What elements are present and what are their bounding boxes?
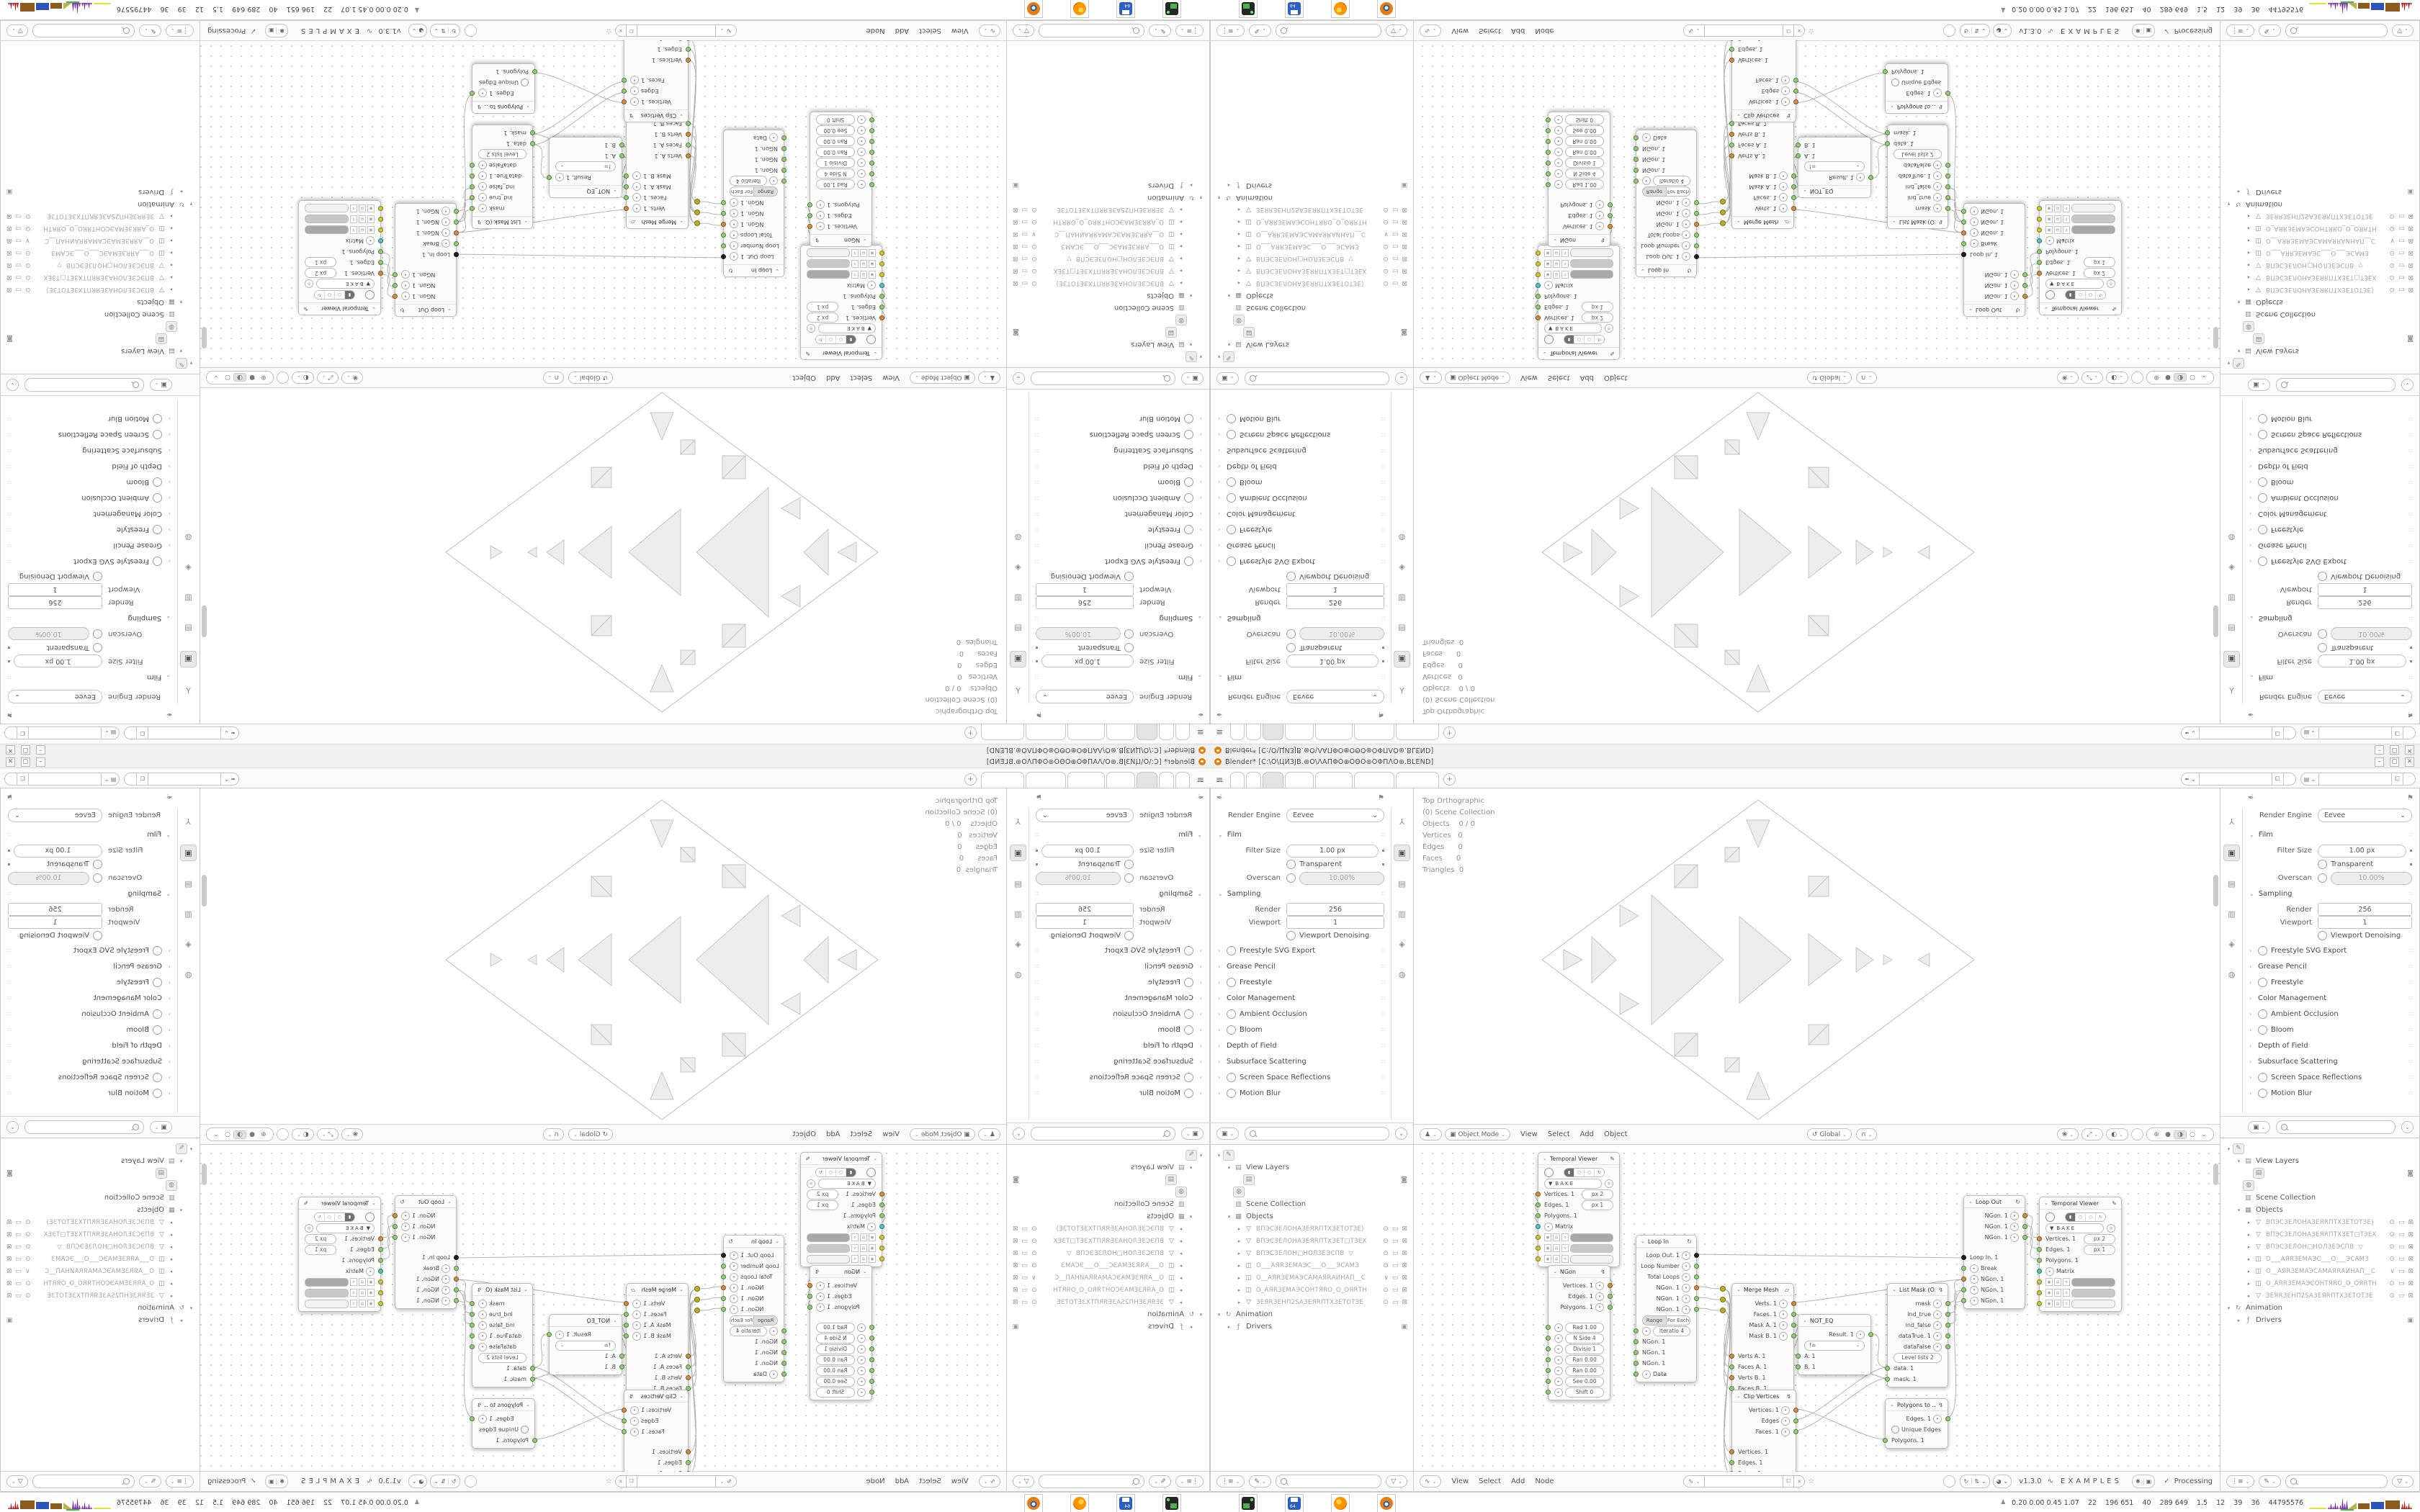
node-collapse-icon[interactable]: ⌄ xyxy=(1803,189,1807,194)
socket-dropdown-icon[interactable]: ▾ xyxy=(1933,194,1942,202)
bake-button[interactable]: ▼BAKE xyxy=(316,1223,375,1233)
copy-node-tree-button[interactable]: ⧠ xyxy=(626,24,637,37)
node-collapse-icon[interactable]: ⌄ xyxy=(1736,113,1741,119)
render-icon[interactable]: ▣ xyxy=(1010,845,1026,861)
viewer-mode-toggle-1[interactable]: ▮ xyxy=(1564,1169,1574,1176)
color-swatch[interactable] xyxy=(807,271,850,279)
socket-dropdown-icon[interactable]: ▾ xyxy=(401,292,410,301)
socket-dropdown-icon[interactable]: ▾ xyxy=(730,1284,738,1292)
unlink-node-tree-button[interactable]: ✕ xyxy=(615,24,626,37)
swatch-option-1[interactable]: ▣ xyxy=(367,1300,375,1308)
prop-row[interactable]: Overscan10.00% xyxy=(1028,627,1209,641)
socket-dropdown-icon[interactable]: ▾ xyxy=(630,1417,639,1426)
socket-ngon-1[interactable] xyxy=(454,1287,459,1292)
drag-grip-icon[interactable]: ∷ xyxy=(6,448,11,454)
scene-icon[interactable]: ◈ xyxy=(1010,937,1026,952)
properties-search-input[interactable] xyxy=(2276,378,2396,392)
node-list-mask-o[interactable]: ⌄List Mask (O...↯mask▾ind_true▾ind_false… xyxy=(472,1283,533,1387)
section-caret-icon[interactable]: › xyxy=(2249,1090,2254,1097)
node-collapse-icon[interactable]: ⌄ xyxy=(873,351,877,356)
socket-mask-b-1[interactable] xyxy=(624,174,629,179)
camx-icon[interactable]: ⊠ xyxy=(6,250,12,257)
prop-row[interactable]: ›Depth of Field∷ xyxy=(1211,459,1391,474)
socket-swatch[interactable] xyxy=(1536,262,1541,267)
bake-button[interactable]: ▼BAKE xyxy=(818,1179,876,1189)
prop-row[interactable]: ›Freestyle∷ xyxy=(1028,522,1209,538)
socket-dropdown-icon[interactable]: ▾ xyxy=(478,89,487,98)
outliner-row[interactable]: ◍ xyxy=(1010,1186,1205,1198)
node-polygons-to[interactable]: ⌄Polygons to ...↯Edges. 1▾Unique EdgesPo… xyxy=(472,63,535,114)
socket-edges-1[interactable] xyxy=(686,1460,691,1465)
node-tree-name-field[interactable] xyxy=(1705,24,1783,37)
socket-dropdown-icon[interactable]: ▾ xyxy=(478,1343,487,1351)
viewport-scrollbar[interactable] xyxy=(202,875,207,906)
camx-icon[interactable]: ⊠ xyxy=(6,1280,12,1287)
copy-node-tree-button[interactable]: ⧠ xyxy=(1783,24,1794,37)
expand-caret-icon[interactable]: ▸ xyxy=(1187,1324,1195,1330)
socket-matrix[interactable] xyxy=(2037,1269,2042,1274)
section-caret-icon[interactable]: › xyxy=(2249,559,2254,565)
expand-caret-icon[interactable]: ▸ xyxy=(167,238,175,244)
prop-row[interactable]: ›Grease Pencil∷ xyxy=(1028,958,1209,974)
node-collapse-icon[interactable]: ⌄ xyxy=(1553,238,1557,243)
socket-verts-1[interactable] xyxy=(624,207,629,212)
socket-data-1[interactable] xyxy=(530,1366,535,1371)
wireframe-shading-icon[interactable]: ⊕ xyxy=(2151,374,2162,382)
prop-row[interactable]: ›Freestyle SVG Export∷ xyxy=(1211,942,1391,958)
outliner-row[interactable]: ▥Scene Collection xyxy=(1010,302,1205,314)
socket-swatch[interactable] xyxy=(879,1246,884,1251)
chev-icon[interactable]: ∨ xyxy=(1384,231,1389,238)
prop-row[interactable]: Transparent xyxy=(1211,641,1391,654)
viewport-scrollbar[interactable] xyxy=(2213,875,2218,906)
screen-icon[interactable]: ▭ xyxy=(1022,256,1028,263)
eye-icon[interactable]: ⊙ xyxy=(25,287,31,294)
section-caret-icon[interactable]: ⌄ xyxy=(1218,674,1223,680)
section-checkbox[interactable] xyxy=(2258,494,2267,503)
workspace-tab-5[interactable] xyxy=(1067,772,1105,788)
prop-checkbox[interactable] xyxy=(2318,629,2327,639)
socket-diamond-icon[interactable]: ▸ xyxy=(769,1370,778,1379)
socket-ngon-1[interactable] xyxy=(1694,1296,1699,1301)
socket-total-loops[interactable] xyxy=(721,233,726,238)
shading-mode-group[interactable]: ⊕●◑○⌄ xyxy=(206,371,274,384)
rendered-shading-icon[interactable]: ○ xyxy=(222,374,233,382)
socket-dropdown-icon[interactable]: ▾ xyxy=(1933,1321,1942,1330)
outliner-row[interactable]: ▾✎ xyxy=(2225,357,2416,369)
editor-type-button[interactable]: ▣⌄ xyxy=(1216,372,1239,384)
viewport-3d[interactable]: Top Orthographic(0) Scene CollectionObje… xyxy=(200,788,1007,1145)
socket-diamond-icon[interactable]: ▸ xyxy=(2045,237,2054,246)
outliner-row[interactable]: ▸▽ВПЭСЗЕЛОНАЗЕЯRПТХЗЕТОТЗЕ)⊙▭⊠ xyxy=(1215,277,1410,289)
node-value-field[interactable]: Ran 0.00 xyxy=(1565,148,1604,158)
section-checkbox[interactable] xyxy=(1184,415,1193,424)
outliner-row[interactable]: ▾▦Objects xyxy=(2225,1204,2416,1216)
screen-icon[interactable]: ▭ xyxy=(1392,280,1399,287)
prop-row[interactable]: ›Ambient Occlusion∷ xyxy=(2242,490,2419,506)
eye-icon[interactable]: ⊙ xyxy=(25,1292,31,1300)
expand-caret-icon[interactable]: ▸ xyxy=(167,275,175,281)
drag-grip-icon[interactable]: ∷ xyxy=(1381,432,1386,438)
prop-row[interactable]: ›Freestyle SVG Export∷ xyxy=(1,554,178,570)
socket-diamond-icon[interactable]: ▸ xyxy=(867,282,876,290)
viewport-menu-add[interactable]: Add xyxy=(1580,374,1594,382)
eye-icon[interactable]: ⊙ xyxy=(25,213,31,220)
expand-caret-icon[interactable]: ▸ xyxy=(1177,220,1185,225)
prop-value-field[interactable]: 256 xyxy=(2318,903,2412,916)
socket-data[interactable] xyxy=(1633,1372,1639,1377)
socket-dropdown-icon[interactable]: ▾ xyxy=(478,204,487,213)
socket-mask-1[interactable] xyxy=(1885,131,1890,136)
socket-dropdown-icon[interactable]: ▾ xyxy=(2010,271,2019,279)
drag-grip-icon[interactable]: ∷ xyxy=(6,1090,11,1097)
taskbar-button-floppy-64[interactable] xyxy=(1116,0,1135,18)
drag-grip-icon[interactable]: ∷ xyxy=(6,1058,11,1065)
socket-swatch[interactable] xyxy=(2037,207,2042,212)
prop-row[interactable]: ›Grease Pencil∷ xyxy=(2242,958,2419,974)
viewer-mode-toggle-1[interactable]: ▮ xyxy=(2066,291,2075,299)
section-caret-icon[interactable]: ⌄ xyxy=(2249,891,2254,897)
node-collapse-icon[interactable]: ⌄ xyxy=(1736,220,1741,225)
socket-edges[interactable] xyxy=(622,1418,627,1423)
node-value-field[interactable]: px 2 xyxy=(807,1189,838,1200)
prop-row[interactable]: Viewport1 xyxy=(1028,583,1209,596)
drag-grip-icon[interactable]: ∷ xyxy=(6,1043,11,1049)
outliner-search-input[interactable] xyxy=(1039,24,1144,37)
section-caret-icon[interactable]: › xyxy=(166,480,171,486)
prop-row[interactable]: ›Screen Space Reflections∷ xyxy=(1211,427,1391,443)
node-value-field[interactable]: See 0.00 xyxy=(1565,1377,1604,1387)
copy-scene-button[interactable]: ⧠ xyxy=(2272,726,2284,739)
section-caret-icon[interactable]: › xyxy=(166,543,171,549)
drag-grip-icon[interactable]: ∷ xyxy=(1034,464,1039,470)
eye-icon[interactable]: ⊙ xyxy=(1031,243,1037,251)
swatch-option-1[interactable]: ▣ xyxy=(1544,1244,1551,1252)
editor-type-button[interactable]: ∿⌄ xyxy=(1420,1475,1441,1488)
node-value-field[interactable]: See 0.00 xyxy=(816,126,855,136)
bake-refresh-icon[interactable]: ◎ xyxy=(1605,325,1613,333)
transform-orientation-dropdown[interactable]: ↺ Global⌄ xyxy=(1807,372,1852,384)
drag-grip-icon[interactable]: ∷ xyxy=(6,527,11,534)
bake-button[interactable]: ▼BAKE xyxy=(2045,1223,2104,1233)
section-caret-icon[interactable]: › xyxy=(2249,527,2254,534)
prop-row[interactable]: Viewport Denoising xyxy=(1028,929,1209,942)
node-tree-selector[interactable]: ∿⌄⧠✕ xyxy=(615,24,737,37)
drag-grip-icon[interactable]: ∷ xyxy=(2409,1090,2414,1097)
outliner-row[interactable]: ▸◫О__АЯRЗЕМАЭСАМАЯRАИНАП__С∨▭⊠ xyxy=(1215,1272,1410,1284)
socket-data[interactable] xyxy=(1633,136,1639,141)
snapping-button[interactable]: ∩⌄ xyxy=(543,372,564,384)
screen-icon[interactable]: ▭ xyxy=(1022,207,1028,214)
color-swatch[interactable] xyxy=(1570,249,1613,258)
wireframe-shading-icon[interactable]: ⊕ xyxy=(258,374,269,382)
node-collapse-icon[interactable]: ⌄ xyxy=(447,1199,452,1205)
section-checkbox[interactable] xyxy=(1227,1009,1236,1019)
color-swatch[interactable] xyxy=(2071,215,2115,224)
socket-ran-0-00[interactable] xyxy=(1546,1357,1551,1362)
socket-edges-1[interactable] xyxy=(1536,305,1541,310)
socket-polygons-1[interactable] xyxy=(2037,1258,2042,1263)
socket-ngon-1[interactable] xyxy=(1633,168,1639,174)
eye-icon[interactable]: ⊙ xyxy=(2389,1243,2395,1251)
prop-row[interactable]: ›Screen Space Reflections∷ xyxy=(1,427,178,443)
expand-caret-icon[interactable]: ▾ xyxy=(1215,354,1223,360)
taskbar-button-floppy-64[interactable] xyxy=(1285,0,1304,18)
socket-diamond-icon[interactable]: ▸ xyxy=(1554,148,1563,157)
socket-polygons-1[interactable] xyxy=(1536,1213,1541,1218)
animate-dot[interactable] xyxy=(1382,863,1384,865)
drag-grip-icon[interactable]: ∷ xyxy=(1381,995,1386,1002)
output-icon[interactable]: ▤ xyxy=(1394,621,1410,636)
socket-swatch[interactable] xyxy=(1536,251,1541,256)
node-value-field[interactable]: px 2 xyxy=(2084,269,2115,279)
socket-mask-1[interactable] xyxy=(1885,1377,1890,1382)
screen-icon[interactable]: ▭ xyxy=(1392,207,1399,214)
section-caret-icon[interactable]: ⌄ xyxy=(166,891,171,897)
node-loop-out[interactable]: ⌄Loop Out↻NGon. 1▾NGon. 1▾NGon. 1▾Loop I… xyxy=(395,203,457,317)
render-engine-dropdown[interactable]: Eevee⌄ xyxy=(1286,809,1384,822)
viewer-enable-toggle[interactable] xyxy=(1544,1168,1554,1177)
prop-row[interactable]: ›Color Management∷ xyxy=(1,990,178,1006)
prop-row[interactable]: ⌄Sampling∷ xyxy=(1028,885,1209,903)
node-collapse-icon[interactable]: ⌄ xyxy=(524,220,528,225)
socket-faces-1[interactable] xyxy=(1791,1312,1796,1317)
node-loop-out[interactable]: ⌄Loop Out↻NGon. 1▾NGon. 1▾NGon. 1▾Loop I… xyxy=(395,1195,457,1309)
outliner-row[interactable]: ▥Scene Collection xyxy=(1010,1198,1205,1210)
reroute-dot[interactable] xyxy=(1720,220,1726,226)
scene-name-field[interactable] xyxy=(148,773,220,786)
section-checkbox[interactable] xyxy=(1184,1025,1193,1035)
prop-value-field[interactable]: 256 xyxy=(1286,903,1384,916)
drag-grip-icon[interactable]: ∷ xyxy=(1034,511,1039,518)
outliner-row[interactable]: ▸▽ВПЭСЗЕЛОНАЗЕЯRПТХЗЕТ□ТЗЕХ⊙▭⊠ xyxy=(4,1228,195,1241)
section-checkbox[interactable] xyxy=(153,1025,162,1035)
socket-diamond-icon[interactable]: ▸ xyxy=(1642,1370,1651,1379)
node-collapse-icon[interactable]: ⌄ xyxy=(526,1402,530,1408)
outliner-row[interactable]: ▸▽ВПЭСЗЕЛОН□НОЛЗЕЭСПВ▽⊙▭⊠ xyxy=(2225,1241,2416,1253)
socket-datatrue-1[interactable] xyxy=(1945,1333,1950,1338)
viewer-enable-toggle[interactable] xyxy=(1544,335,1554,344)
screen-icon[interactable]: ▭ xyxy=(1392,1225,1399,1233)
screen-icon[interactable]: ▭ xyxy=(2398,1292,2405,1300)
socket-ngon-1[interactable] xyxy=(2022,1213,2027,1218)
socket-mask[interactable] xyxy=(470,207,475,212)
outliner-row[interactable]: ▾↻Animation xyxy=(4,198,195,210)
expand-caret-icon[interactable]: ▾ xyxy=(187,361,195,366)
socket-mask[interactable] xyxy=(1945,1301,1950,1306)
outliner-row[interactable]: ▸▽ВПЭСЗЕЛОНАЗЕЯRПТХЗЕТОТЗЕ)⊙▭⊠ xyxy=(2225,1216,2416,1228)
expand-caret-icon[interactable]: ▸ xyxy=(1235,244,1243,250)
outliner-row[interactable]: ▾✎ xyxy=(1010,351,1205,363)
expand-caret-icon[interactable]: ▸ xyxy=(1235,1251,1243,1256)
expand-caret-icon[interactable]: ▾ xyxy=(187,1146,195,1152)
node-temporal-viewer[interactable]: ⌄Temporal Viewer✎▮○○↻▼BAKE◎Vertices. 1px… xyxy=(298,200,381,315)
socket-diamond-icon[interactable]: ▸ xyxy=(1544,1223,1553,1231)
options-button[interactable]: ⌄ xyxy=(6,379,19,391)
socket-matrix[interactable] xyxy=(378,1269,383,1274)
material-shading-icon[interactable]: ◑ xyxy=(2174,1130,2187,1139)
prop-checkbox[interactable] xyxy=(2318,873,2327,883)
viewlayer-icon[interactable]: ▥ xyxy=(181,590,196,606)
node-value-field[interactable]: px 1 xyxy=(305,258,336,268)
render-engine-dropdown[interactable]: Eevee⌄ xyxy=(8,809,102,822)
expand-caret-icon[interactable]: ▾ xyxy=(187,202,195,207)
outliner-row[interactable]: ▸▽ВПЭСЗЕЛОНАЗЕЯRПТХЗЕТ□ТЗЕХ⊙▭⊠ xyxy=(1215,1235,1410,1247)
prop-value-field[interactable]: 256 xyxy=(2318,596,2412,609)
viewer-mode-toggle-4[interactable]: ↻ xyxy=(816,336,826,343)
prop-row[interactable]: ⌄Film∷ xyxy=(1,826,178,844)
prop-row[interactable]: ›Freestyle SVG Export∷ xyxy=(1,942,178,958)
prop-row[interactable]: Overscan10.00% xyxy=(1211,627,1391,641)
socket-dropdown-icon[interactable]: ▾ xyxy=(478,1321,487,1330)
viewer-mode-toggle-3[interactable]: ○ xyxy=(1584,1169,1594,1176)
outliner-editor-icon[interactable]: ✎⌄ xyxy=(1149,1475,1170,1488)
swatch-option-3[interactable]: ↯ xyxy=(2063,226,2070,234)
expand-caret-icon[interactable]: ▾ xyxy=(1197,354,1205,360)
box-icon[interactable]: ▣ xyxy=(2407,1317,2414,1324)
section-caret-icon[interactable]: ⌄ xyxy=(1218,891,1223,897)
socket-dropdown-icon[interactable]: ▾ xyxy=(630,87,639,96)
node-temporal-viewer[interactable]: ⌄Temporal Viewer✎▮○○↻▼BAKE◎Vertices. 1px… xyxy=(800,245,882,360)
eye-icon[interactable]: ⊙ xyxy=(2389,262,2395,269)
node-menu-add[interactable]: Add xyxy=(1511,1477,1525,1485)
tool-icon[interactable]: ⅄ xyxy=(2224,683,2239,698)
socket-ngon-1[interactable] xyxy=(1633,158,1639,163)
pin-toggle[interactable] xyxy=(465,24,477,37)
bake-button[interactable]: ▼BAKE xyxy=(2045,279,2104,289)
camx-icon[interactable]: ⊠ xyxy=(6,1268,12,1275)
reroute-dot[interactable] xyxy=(694,1297,700,1302)
node-menu-add[interactable]: Add xyxy=(1511,27,1525,35)
swatch-option-3[interactable]: ↯ xyxy=(1561,1233,1569,1241)
options-button[interactable]: ⌄ xyxy=(6,1121,19,1133)
prop-row[interactable]: ›Bloom∷ xyxy=(1028,474,1209,490)
screen-icon[interactable]: ▭ xyxy=(2398,1231,2405,1238)
outliner-row[interactable]: ▾↻Animation xyxy=(2225,198,2416,210)
node-not-eq[interactable]: ⌄NOT_EQResult. 1▾!= ⌄A. 1B. 1 xyxy=(1798,137,1871,198)
chev-icon[interactable]: ∨ xyxy=(1031,231,1036,238)
swatch-option-1[interactable]: ▣ xyxy=(1544,271,1551,279)
section-checkbox[interactable] xyxy=(2258,1025,2267,1035)
copy-scene-button[interactable]: ⧠ xyxy=(136,773,148,786)
socket-diamond-icon[interactable]: ▸ xyxy=(857,116,866,125)
section-checkbox[interactable] xyxy=(1184,431,1193,440)
gizmo-button[interactable]: ⤢⌄ xyxy=(2081,372,2103,384)
prop-row[interactable]: ⌄Sampling∷ xyxy=(2242,609,2419,627)
node-value-field[interactable]: Divisio 1 xyxy=(816,1344,855,1354)
workspace-tab-3[interactable] xyxy=(1263,772,1283,788)
node-collapse-icon[interactable]: ⌄ xyxy=(1543,1156,1547,1161)
viewer-mode-toggle-4[interactable]: ↻ xyxy=(315,1213,325,1221)
socket-dropdown-icon[interactable]: ▾ xyxy=(630,1428,639,1436)
options-button[interactable]: ⌄ xyxy=(1395,372,1407,384)
node-value-field[interactable]: See 0.00 xyxy=(816,1377,855,1387)
screen-icon[interactable]: ▭ xyxy=(1392,1250,1399,1257)
section-caret-icon[interactable]: › xyxy=(1198,948,1202,954)
camx-icon[interactable]: ⊠ xyxy=(1402,231,1407,238)
socket-dropdown-icon[interactable]: ▾ xyxy=(730,231,738,240)
node-collapse-icon[interactable]: ⌄ xyxy=(679,1393,684,1399)
socket-mask-a-1[interactable] xyxy=(1791,1323,1796,1328)
node-operator-dropdown[interactable]: != ⌄ xyxy=(555,162,616,172)
camx-icon[interactable]: ⊠ xyxy=(1013,1238,1018,1245)
workspace-tab-1[interactable] xyxy=(1230,772,1245,788)
swatch-option-3[interactable]: ↯ xyxy=(350,204,357,212)
copy-viewlayer-button[interactable]: ⧠ xyxy=(17,726,28,739)
expand-caret-icon[interactable]: ▾ xyxy=(1187,1214,1195,1220)
socket-dropdown-icon[interactable]: ▾ xyxy=(1779,1310,1788,1319)
socket-diamond-icon[interactable]: ▸ xyxy=(1554,116,1563,125)
animate-dot[interactable] xyxy=(2410,647,2412,649)
socket-dropdown-icon[interactable]: ▾ xyxy=(730,1305,738,1314)
unlink-node-tree-button[interactable]: ✕ xyxy=(1794,24,1805,37)
socket-a-1[interactable] xyxy=(1796,1354,1801,1359)
node-temporal-viewer[interactable]: ⌄Temporal Viewer✎▮○○↻▼BAKE◎Vertices. 1px… xyxy=(2039,200,2122,315)
expand-caret-icon[interactable]: ▾ xyxy=(1225,293,1233,299)
socket-swatch[interactable] xyxy=(1536,273,1541,278)
expand-caret-icon[interactable]: ▸ xyxy=(2245,1281,2253,1287)
socket-dropdown-icon[interactable]: ▾ xyxy=(632,1300,641,1308)
expand-caret-icon[interactable]: ▸ xyxy=(2245,287,2253,293)
socket-vertices-1[interactable] xyxy=(1793,1408,1798,1413)
bake-refresh-icon[interactable]: ◎ xyxy=(2107,280,2115,289)
drag-grip-icon[interactable]: ∷ xyxy=(1034,432,1039,438)
section-checkbox[interactable] xyxy=(1227,1089,1236,1098)
outliner-row[interactable]: ▸▽ВПЭСЗЕЛОНАЗЕЯRПТХЗЕТ□ТЗЕХ⊙▭⊠ xyxy=(2225,1228,2416,1241)
camx-icon[interactable]: ⊠ xyxy=(2408,1280,2414,1287)
drag-grip-icon[interactable]: ∷ xyxy=(1381,448,1386,454)
eye-icon[interactable]: ⊙ xyxy=(25,250,31,257)
expand-caret-icon[interactable]: ▸ xyxy=(1177,1287,1185,1293)
swatch-option-3[interactable]: ↯ xyxy=(1561,1244,1569,1252)
drag-grip-icon[interactable]: ∷ xyxy=(6,948,11,954)
firefox-icon[interactable] xyxy=(1073,1497,1086,1510)
prop-row[interactable]: ›Screen Space Reflections∷ xyxy=(1028,427,1209,443)
section-caret-icon[interactable]: › xyxy=(166,1090,171,1097)
socket-rad-1-00[interactable] xyxy=(1546,1325,1551,1330)
node-collapse-icon[interactable]: ⌄ xyxy=(372,1200,376,1206)
tool-icon[interactable]: ⅄ xyxy=(1010,683,1026,698)
swatch-option-1[interactable]: ▣ xyxy=(1544,260,1551,268)
animate-dot[interactable] xyxy=(1382,660,1384,662)
prop-row[interactable]: ›Screen Space Reflections∷ xyxy=(1,1069,178,1085)
section-checkbox[interactable] xyxy=(2258,431,2267,440)
prop-checkbox[interactable] xyxy=(2318,643,2327,652)
socket-loop-out-1[interactable] xyxy=(721,1253,726,1258)
pin-icon[interactable]: ⚑ xyxy=(1036,711,1042,719)
swatch-option-3[interactable]: ↯ xyxy=(851,260,859,268)
swatch-option-1[interactable]: ▣ xyxy=(1544,1233,1551,1241)
prop-row[interactable]: ›Subsurface Scattering∷ xyxy=(1028,1053,1209,1069)
socket-edges-1[interactable] xyxy=(807,1294,812,1299)
settings-buttons[interactable]: ✱▣ xyxy=(2132,24,2155,37)
outliner-row[interactable]: ▸◫О__АЯRЗЕМАЭСАМАЯRАИНАП__С∨▭⊠ xyxy=(4,1265,195,1277)
socket-total-loops[interactable] xyxy=(721,1274,726,1279)
outliner-row[interactable]: ▤◙ xyxy=(2225,333,2416,345)
filter-button[interactable]: ▽⌄ xyxy=(1386,24,1407,37)
section-caret-icon[interactable]: ⌄ xyxy=(1197,832,1202,838)
prop-value-field[interactable]: 10.00% xyxy=(2331,872,2412,885)
socket-dropdown-icon[interactable]: ▾ xyxy=(730,242,738,251)
socket-dropdown-icon[interactable]: ▾ xyxy=(1781,1417,1790,1426)
outliner-row[interactable]: ▸▽ВПЭСЗЕЛОНАЗЕЯRПТХЗЕТОТЗЕ)⊙▭⊠ xyxy=(1010,1223,1205,1235)
socket-ngon-1[interactable] xyxy=(721,212,726,217)
workspace-tab-5[interactable] xyxy=(1315,724,1353,740)
prop-checkbox[interactable] xyxy=(1286,931,1296,940)
socket-diamond-icon[interactable]: ▸ xyxy=(857,138,866,146)
prop-row[interactable]: ›Bloom∷ xyxy=(2242,474,2419,490)
eye-icon[interactable]: ⊙ xyxy=(1031,1238,1037,1245)
